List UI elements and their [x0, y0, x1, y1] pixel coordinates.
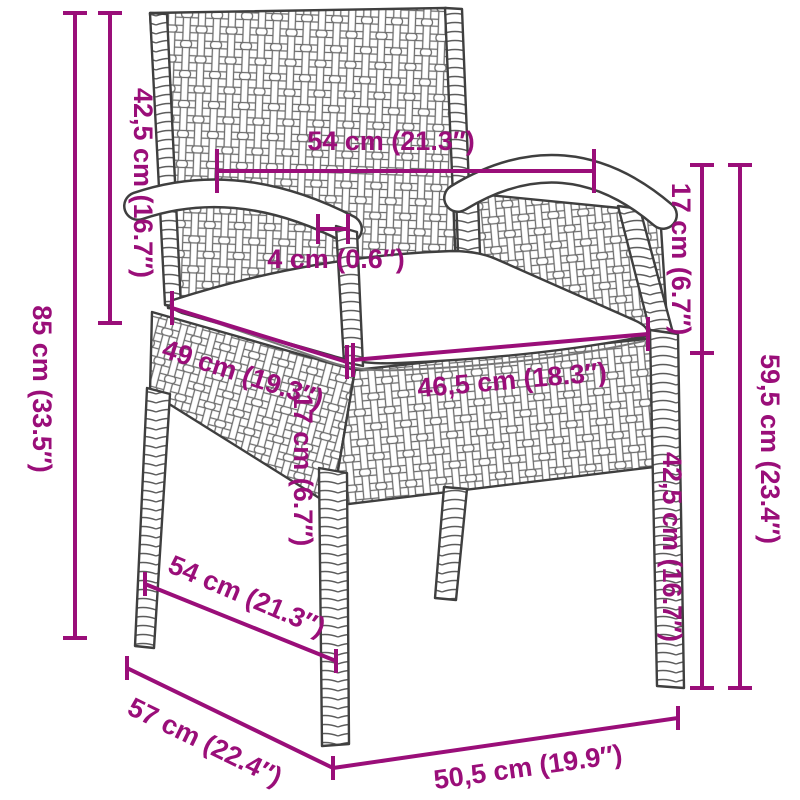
label-backrest-height: 42,5 cm (16.7″): [128, 88, 158, 278]
label-side-depth: 54 cm (21.3″): [164, 549, 330, 642]
label-armrest-to-seat: 17 cm (6.7″): [666, 183, 696, 336]
label-total-height: 85 cm (33.5″): [27, 305, 57, 473]
chair-dimension-drawing: 85 cm (33.5″) 42,5 cm (16.7″) 54 cm (21.…: [0, 0, 800, 800]
label-armrest-height: 59,5 cm (23.4″): [755, 354, 785, 544]
label-apron-height: 17 cm (6.7″): [288, 394, 318, 547]
label-front-width: 50,5 cm (19.9″): [432, 739, 624, 795]
dim-backrest-height-line: [98, 13, 122, 323]
dim-total-height-line: [63, 13, 87, 638]
rear-left-leg: [435, 487, 467, 600]
label-armrest-thickness: 4 cm (0.6″): [267, 244, 405, 274]
dimension-diagram: 85 cm (33.5″) 42,5 cm (16.7″) 54 cm (21.…: [0, 0, 800, 800]
label-seat-height: 42,5 cm (16.7″): [657, 452, 687, 642]
front-left-leg: [135, 388, 170, 648]
dim-armrest-height-line: [728, 165, 752, 688]
label-top-width: 54 cm (21.3″): [307, 126, 475, 156]
front-center-leg: [319, 468, 349, 746]
